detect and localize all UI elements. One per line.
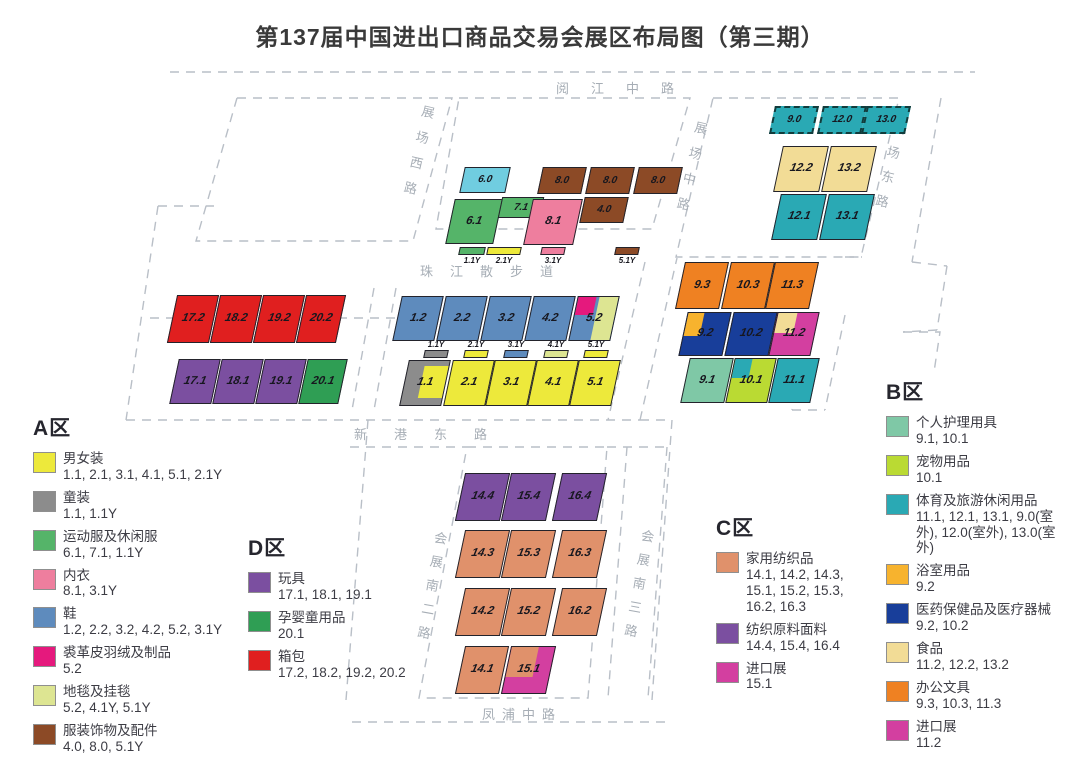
legend-text: 箱包17.2, 18.2, 19.2, 20.2	[278, 649, 406, 681]
hall-shape	[423, 350, 449, 358]
legend-text: 纺织原料面料14.4, 15.4, 16.4	[746, 622, 840, 654]
color-swatch	[886, 564, 909, 585]
hall-20.2: 20.2	[301, 295, 341, 343]
hall-number: 2.1	[460, 377, 478, 389]
hall-shape	[463, 350, 489, 358]
color-swatch	[886, 681, 909, 702]
hall-shape: 13.0	[861, 106, 911, 134]
hall-shape: 20.1	[298, 359, 348, 404]
category-halls: 17.2, 18.2, 19.2, 20.2	[278, 665, 406, 681]
hall-19.2: 19.2	[258, 295, 300, 343]
hall-shape: 16.4	[552, 473, 607, 521]
hall-13.1: 13.1	[824, 194, 870, 240]
hall-shape: 1.1	[399, 360, 451, 406]
hall-number: 15.4	[516, 491, 541, 503]
hall-14.1: 14.1	[460, 646, 504, 694]
hall-number: 14.4	[470, 491, 495, 503]
hall-13.2: 13.2	[826, 146, 872, 192]
category-name: 宠物用品	[916, 454, 970, 470]
category-name: 内衣	[63, 568, 117, 584]
category-halls: 20.1	[278, 626, 346, 642]
hall-number: 5.1Y	[611, 256, 643, 265]
hall-number: 18.1	[226, 376, 251, 388]
legend-text: 男女装1.1, 2.1, 3.1, 4.1, 5.1, 2.1Y	[63, 451, 222, 483]
legend-text: 浴室用品9.2	[916, 563, 970, 595]
hall-number: 10.1	[739, 375, 764, 387]
hall-number: 19.1	[269, 376, 294, 388]
hall-shape: 9.2	[678, 312, 731, 356]
hall-shape: 15.3	[501, 530, 556, 578]
hall-15.1: 15.1	[506, 646, 551, 694]
hall-number: 7.1	[513, 203, 529, 213]
color-swatch	[716, 662, 739, 683]
hall-shape: 9.0	[769, 106, 819, 134]
legend-b-title: B区	[886, 376, 1071, 406]
hall-number: 12.1	[787, 211, 812, 223]
category-name: 纺织原料面料	[746, 622, 840, 638]
hall-number: 1.1Y	[420, 340, 452, 349]
hall-number: 11.1	[782, 375, 806, 387]
legend-item: 浴室用品9.2	[886, 563, 1071, 595]
hall-number: 9.1	[698, 375, 716, 387]
category-name: 办公文具	[916, 680, 1001, 696]
hall-number: 19.2	[267, 313, 292, 325]
color-swatch	[33, 646, 56, 667]
hall-2.1: 2.1	[448, 360, 490, 406]
category-halls: 9.2, 10.2	[916, 618, 1051, 634]
legend-text: 裘革皮羽绒及制品5.2	[63, 645, 171, 677]
legend-item: 纺织原料面料14.4, 15.4, 16.4	[716, 622, 866, 654]
hall-number: 3.1	[502, 377, 520, 389]
hall-shape: 16.3	[552, 530, 607, 578]
category-name: 体育及旅游休闲用品	[916, 493, 1071, 509]
hall-4.1Y: 4.1Y	[544, 350, 568, 358]
category-name: 浴室用品	[916, 563, 970, 579]
legend-d-zone: D区玩具17.1, 18.1, 19.1孕婴童用品20.1箱包17.2, 18.…	[248, 532, 438, 688]
legend-item: 男女装1.1, 2.1, 3.1, 4.1, 5.1, 2.1Y	[33, 451, 248, 483]
category-name: 地毯及挂毯	[63, 684, 151, 700]
legend-item: 内衣8.1, 3.1Y	[33, 568, 248, 600]
legend-text: 运动服及休闲服6.1, 7.1, 1.1Y	[63, 529, 158, 561]
hall-3.1Y: 3.1Y	[504, 350, 528, 358]
category-name: 鞋	[63, 606, 222, 622]
category-halls: 8.1, 3.1Y	[63, 583, 117, 599]
hall-shape: 5.1	[569, 360, 621, 406]
hall-9.0: 9.0	[772, 106, 816, 134]
color-swatch	[886, 642, 909, 663]
category-name: 食品	[916, 641, 1009, 657]
category-halls: 4.0, 8.0, 5.1Y	[63, 739, 158, 755]
hall-11.1: 11.1	[773, 358, 815, 403]
hall-number: 20.1	[311, 376, 336, 388]
legend-c-title: C区	[716, 512, 866, 542]
hall-13.0: 13.0	[864, 106, 908, 134]
hall-number: 3.1Y	[537, 256, 569, 265]
hall-shape: 20.2	[296, 295, 346, 343]
hall-number: 5.1	[586, 377, 604, 389]
category-halls: 1.2, 2.2, 3.2, 4.2, 5.2, 3.1Y	[63, 622, 222, 638]
hall-shape: 5.2	[568, 296, 620, 341]
hall-number: 17.2	[181, 313, 206, 325]
map-canvas: 阅江中路展场西路展场中路展场东路珠江散步道新港东路会展南二路会展南三路凤浦中路9…	[0, 0, 1080, 761]
hall-shape	[614, 247, 640, 255]
category-halls: 1.1, 1.1Y	[63, 506, 117, 522]
hall-8.1: 8.1	[528, 199, 578, 245]
legend-item: 个人护理用具9.1, 10.1	[886, 415, 1071, 447]
color-swatch	[33, 607, 56, 628]
legend-item: 裘革皮羽绒及制品5.2	[33, 645, 248, 677]
category-halls: 14.1, 14.2, 14.3, 15.1, 15.2, 15.3, 16.2…	[746, 567, 866, 615]
color-swatch	[33, 685, 56, 706]
legend-text: 孕婴童用品20.1	[278, 610, 346, 642]
category-name: 家用纺织品	[746, 551, 866, 567]
road-label-fengpu-middle-road: 凤浦中路	[482, 704, 562, 723]
category-halls: 11.2	[916, 735, 957, 751]
legend-item: 地毯及挂毯5.2, 4.1Y, 5.1Y	[33, 684, 248, 716]
hall-4.2: 4.2	[529, 296, 571, 341]
category-name: 进口展	[916, 719, 957, 735]
hall-number: 14.1	[470, 664, 495, 676]
legend-a-zone: A区男女装1.1, 2.1, 3.1, 4.1, 5.1, 2.1Y童装1.1,…	[33, 412, 248, 761]
legend-item: 孕婴童用品20.1	[248, 610, 438, 642]
hall-shape: 4.2	[524, 296, 576, 341]
hall-11.2: 11.2	[773, 312, 815, 356]
hall-number: 11.2	[782, 328, 806, 340]
hall-number: 20.2	[309, 313, 334, 325]
legend-item: 服装饰物及配件4.0, 8.0, 5.1Y	[33, 723, 248, 755]
hall-8.0: 8.0	[636, 167, 680, 194]
color-swatch	[248, 611, 271, 632]
hall-shape	[583, 350, 609, 358]
legend-text: 玩具17.1, 18.1, 19.1	[278, 571, 372, 603]
hall-shape: 15.4	[501, 473, 556, 521]
legend-item: 食品11.2, 12.2, 13.2	[886, 641, 1071, 673]
hall-5.1Y: 5.1Y	[615, 247, 639, 255]
hall-shape: 3.2	[480, 296, 532, 341]
category-halls: 5.2	[63, 661, 171, 677]
hall-12.0: 12.0	[820, 106, 864, 134]
hall-number: 12.2	[789, 163, 814, 175]
hall-shape: 2.2	[436, 296, 488, 341]
category-halls: 17.1, 18.1, 19.1	[278, 587, 372, 603]
hall-1.2: 1.2	[397, 296, 439, 341]
hall-shape	[540, 247, 566, 255]
category-name: 裘革皮羽绒及制品	[63, 645, 171, 661]
hall-shape: 11.3	[765, 262, 819, 309]
legend-text: 进口展11.2	[916, 719, 957, 751]
hall-12.2: 12.2	[778, 146, 824, 192]
hall-15.3: 15.3	[506, 530, 551, 578]
hall-shape	[458, 247, 486, 255]
hall-shape: 14.1	[455, 646, 509, 694]
legend-item: 家用纺织品14.1, 14.2, 14.3, 15.1, 15.2, 15.3,…	[716, 551, 866, 615]
category-name: 个人护理用具	[916, 415, 997, 431]
color-swatch	[716, 552, 739, 573]
legend-b-zone: B区个人护理用具9.1, 10.1宠物用品10.1体育及旅游休闲用品11.1, …	[886, 376, 1071, 758]
category-name: 医药保健品及医疗器械	[916, 602, 1051, 618]
hall-number: 4.1Y	[540, 340, 572, 349]
legend-item: 办公文具9.3, 10.3, 11.3	[886, 680, 1071, 712]
hall-number: 13.2	[837, 163, 862, 175]
hall-14.3: 14.3	[460, 530, 505, 578]
legend-d-title: D区	[248, 532, 438, 562]
hall-number: 4.1	[544, 377, 562, 389]
legend-item: 宠物用品10.1	[886, 454, 1071, 486]
legend-text: 鞋1.2, 2.2, 3.2, 4.2, 5.2, 3.1Y	[63, 606, 222, 638]
hall-number: 3.2	[497, 313, 515, 325]
hall-shape: 8.1	[523, 199, 583, 245]
hall-number: 8.0	[650, 176, 666, 186]
category-halls: 9.3, 10.3, 11.3	[916, 696, 1001, 712]
hall-number: 13.1	[835, 211, 860, 223]
hall-number: 12.0	[831, 115, 853, 125]
hall-19.1: 19.1	[260, 359, 302, 404]
hall-shape: 12.2	[773, 146, 829, 192]
hall-18.2: 18.2	[215, 295, 257, 343]
road-label-xingang-east-road: 新港东路	[354, 424, 514, 443]
hall-shape: 11.1	[768, 358, 820, 403]
hall-shape: 6.0	[459, 167, 511, 193]
hall-8.0: 8.0	[588, 167, 632, 194]
hall-shape: 12.1	[771, 194, 827, 240]
category-halls: 1.1, 2.1, 3.1, 4.1, 5.1, 2.1Y	[63, 467, 222, 483]
hall-16.2: 16.2	[557, 588, 602, 636]
hall-6.0: 6.0	[462, 167, 508, 193]
category-halls: 11.2, 12.2, 13.2	[916, 657, 1009, 673]
hall-15.4: 15.4	[506, 473, 551, 521]
legend-a-title: A区	[33, 412, 248, 442]
hall-shape	[486, 247, 522, 255]
legend-item: 进口展11.2	[886, 719, 1071, 751]
hall-number: 9.3	[693, 280, 711, 292]
hall-11.3: 11.3	[770, 262, 814, 309]
color-swatch	[33, 569, 56, 590]
category-halls: 5.2, 4.1Y, 5.1Y	[63, 700, 151, 716]
category-halls: 14.4, 15.4, 16.4	[746, 638, 840, 654]
hall-10.2: 10.2	[729, 312, 773, 356]
legend-item: 运动服及休闲服6.1, 7.1, 1.1Y	[33, 529, 248, 561]
hall-number: 15.2	[516, 606, 541, 618]
legend-item: 玩具17.1, 18.1, 19.1	[248, 571, 438, 603]
hall-17.1: 17.1	[174, 359, 216, 404]
road-label-yuejiang-middle-road: 阅江中路	[556, 78, 696, 97]
hall-4.0: 4.0	[582, 197, 626, 223]
color-swatch	[33, 491, 56, 512]
hall-5.1: 5.1	[574, 360, 616, 406]
hall-number: 16.3	[567, 548, 592, 560]
category-halls: 6.1, 7.1, 1.1Y	[63, 545, 158, 561]
hall-16.3: 16.3	[557, 530, 602, 578]
hall-number: 6.1	[465, 216, 483, 228]
hall-number: 9.2	[696, 328, 714, 340]
hall-shape: 1.2	[392, 296, 444, 341]
category-halls: 10.1	[916, 470, 970, 486]
hall-1.1Y: 1.1Y	[424, 350, 448, 358]
hall-17.2: 17.2	[172, 295, 214, 343]
category-name: 箱包	[278, 649, 406, 665]
hall-shape: 13.1	[819, 194, 875, 240]
hall-3.1Y: 3.1Y	[541, 247, 565, 255]
hall-number: 4.0	[596, 205, 612, 215]
hall-shape: 8.0	[537, 167, 587, 194]
legend-text: 办公文具9.3, 10.3, 11.3	[916, 680, 1001, 712]
hall-shape: 15.2	[501, 588, 556, 636]
hall-5.2: 5.2	[573, 296, 615, 341]
hall-shape: 12.0	[817, 106, 867, 134]
hall-number: 14.2	[470, 606, 495, 618]
legend-text: 宠物用品10.1	[916, 454, 970, 486]
hall-number: 9.0	[786, 115, 802, 125]
legend-text: 个人护理用具9.1, 10.1	[916, 415, 997, 447]
category-name: 服装饰物及配件	[63, 723, 158, 739]
hall-shape: 15.1	[501, 646, 556, 694]
hall-number: 15.1	[516, 664, 541, 676]
hall-12.1: 12.1	[776, 194, 822, 240]
hall-shape: 16.2	[552, 588, 607, 636]
hall-number: 11.3	[780, 280, 804, 292]
hall-shape: 11.2	[768, 312, 819, 356]
hall-number: 2.2	[453, 313, 471, 325]
hall-number: 8.1	[544, 216, 562, 228]
hall-number: 14.3	[470, 548, 495, 560]
hall-4.1: 4.1	[532, 360, 574, 406]
hall-2.1Y: 2.1Y	[464, 350, 488, 358]
color-swatch	[886, 416, 909, 437]
hall-number: 4.2	[541, 313, 559, 325]
hall-number: 17.1	[183, 376, 208, 388]
hall-number: 5.2	[585, 313, 603, 325]
hall-10.1: 10.1	[730, 358, 772, 403]
category-name: 进口展	[746, 661, 787, 677]
color-swatch	[886, 720, 909, 741]
hall-6.1: 6.1	[450, 199, 498, 244]
hall-number: 1.1	[416, 377, 434, 389]
hall-2.1Y: 2.1Y	[487, 247, 521, 255]
category-halls: 9.1, 10.1	[916, 431, 997, 447]
hall-9.2: 9.2	[683, 312, 727, 356]
hall-16.4: 16.4	[557, 473, 602, 521]
category-name: 孕婴童用品	[278, 610, 346, 626]
hall-number: 8.0	[554, 176, 570, 186]
hall-shape: 9.3	[675, 262, 729, 309]
hall-shape: 13.2	[821, 146, 877, 192]
hall-shape: 6.1	[445, 199, 503, 244]
hall-number: 3.1Y	[500, 340, 532, 349]
legend-item: 箱包17.2, 18.2, 19.2, 20.2	[248, 649, 438, 681]
hall-number: 10.2	[739, 328, 764, 340]
hall-number: 10.3	[736, 280, 761, 292]
hall-number: 1.2	[409, 313, 427, 325]
category-halls: 15.1	[746, 676, 787, 692]
legend-item: 童装1.1, 1.1Y	[33, 490, 248, 522]
hall-18.1: 18.1	[217, 359, 259, 404]
hall-number: 15.3	[516, 548, 541, 560]
color-swatch	[886, 494, 909, 515]
category-name: 玩具	[278, 571, 372, 587]
legend-c-zone: C区家用纺织品14.1, 14.2, 14.3, 15.1, 15.2, 15.…	[716, 512, 866, 699]
color-swatch	[248, 650, 271, 671]
hall-15.2: 15.2	[506, 588, 551, 636]
legend-text: 地毯及挂毯5.2, 4.1Y, 5.1Y	[63, 684, 151, 716]
hall-9.3: 9.3	[680, 262, 724, 309]
hall-number: 6.0	[477, 175, 493, 185]
hall-shape	[543, 350, 569, 358]
color-swatch	[886, 455, 909, 476]
category-halls: 11.1, 12.1, 13.1, 9.0(室外), 12.0(室外), 13.…	[916, 509, 1071, 557]
legend-text: 家用纺织品14.1, 14.2, 14.3, 15.1, 15.2, 15.3,…	[746, 551, 866, 615]
hall-number: 16.4	[567, 491, 592, 503]
legend-text: 服装饰物及配件4.0, 8.0, 5.1Y	[63, 723, 158, 755]
legend-text: 体育及旅游休闲用品11.1, 12.1, 13.1, 9.0(室外), 12.0…	[916, 493, 1071, 557]
color-swatch	[886, 603, 909, 624]
color-swatch	[33, 530, 56, 551]
color-swatch	[716, 623, 739, 644]
hall-3.1: 3.1	[490, 360, 532, 406]
hall-shape: 8.0	[585, 167, 635, 194]
hall-number: 2.1Y	[460, 340, 492, 349]
hall-1.1Y: 1.1Y	[459, 247, 485, 255]
legend-item: 进口展15.1	[716, 661, 866, 693]
hall-number: 5.1Y	[580, 340, 612, 349]
legend-text: 食品11.2, 12.2, 13.2	[916, 641, 1009, 673]
hall-14.2: 14.2	[460, 588, 505, 636]
legend-item: 医药保健品及医疗器械9.2, 10.2	[886, 602, 1071, 634]
hall-9.1: 9.1	[685, 358, 729, 403]
hall-5.1Y: 5.1Y	[584, 350, 608, 358]
legend-text: 内衣8.1, 3.1Y	[63, 568, 117, 600]
hall-number: 2.1Y	[483, 256, 525, 265]
hall-20.1: 20.1	[303, 359, 343, 404]
category-name: 童装	[63, 490, 117, 506]
legend-item: 鞋1.2, 2.2, 3.2, 4.2, 5.2, 3.1Y	[33, 606, 248, 638]
legend-text: 医药保健品及医疗器械9.2, 10.2	[916, 602, 1051, 634]
legend-text: 进口展15.1	[746, 661, 787, 693]
color-swatch	[33, 724, 56, 745]
hall-number: 18.2	[224, 313, 249, 325]
hall-3.2: 3.2	[485, 296, 527, 341]
legend-text: 童装1.1, 1.1Y	[63, 490, 117, 522]
hall-number: 16.2	[567, 606, 592, 618]
hall-shape	[503, 350, 529, 358]
fair-layout-map-page: 第137届中国进出口商品交易会展区布局图（第三期） 阅江中路展场西路展场中路展场…	[0, 0, 1080, 761]
hall-shape: 8.0	[633, 167, 683, 194]
hall-number: 13.0	[875, 115, 897, 125]
category-halls: 9.2	[916, 579, 970, 595]
hall-1.1: 1.1	[404, 360, 446, 406]
category-name: 运动服及休闲服	[63, 529, 158, 545]
hall-shape: 4.0	[579, 197, 629, 223]
hall-10.3: 10.3	[726, 262, 770, 309]
hall-2.2: 2.2	[441, 296, 483, 341]
hall-8.0: 8.0	[540, 167, 584, 194]
legend-item: 体育及旅游休闲用品11.1, 12.1, 13.1, 9.0(室外), 12.0…	[886, 493, 1071, 557]
hall-number: 8.0	[602, 176, 618, 186]
color-swatch	[33, 452, 56, 473]
category-name: 男女装	[63, 451, 222, 467]
color-swatch	[248, 572, 271, 593]
hall-14.4: 14.4	[460, 473, 505, 521]
